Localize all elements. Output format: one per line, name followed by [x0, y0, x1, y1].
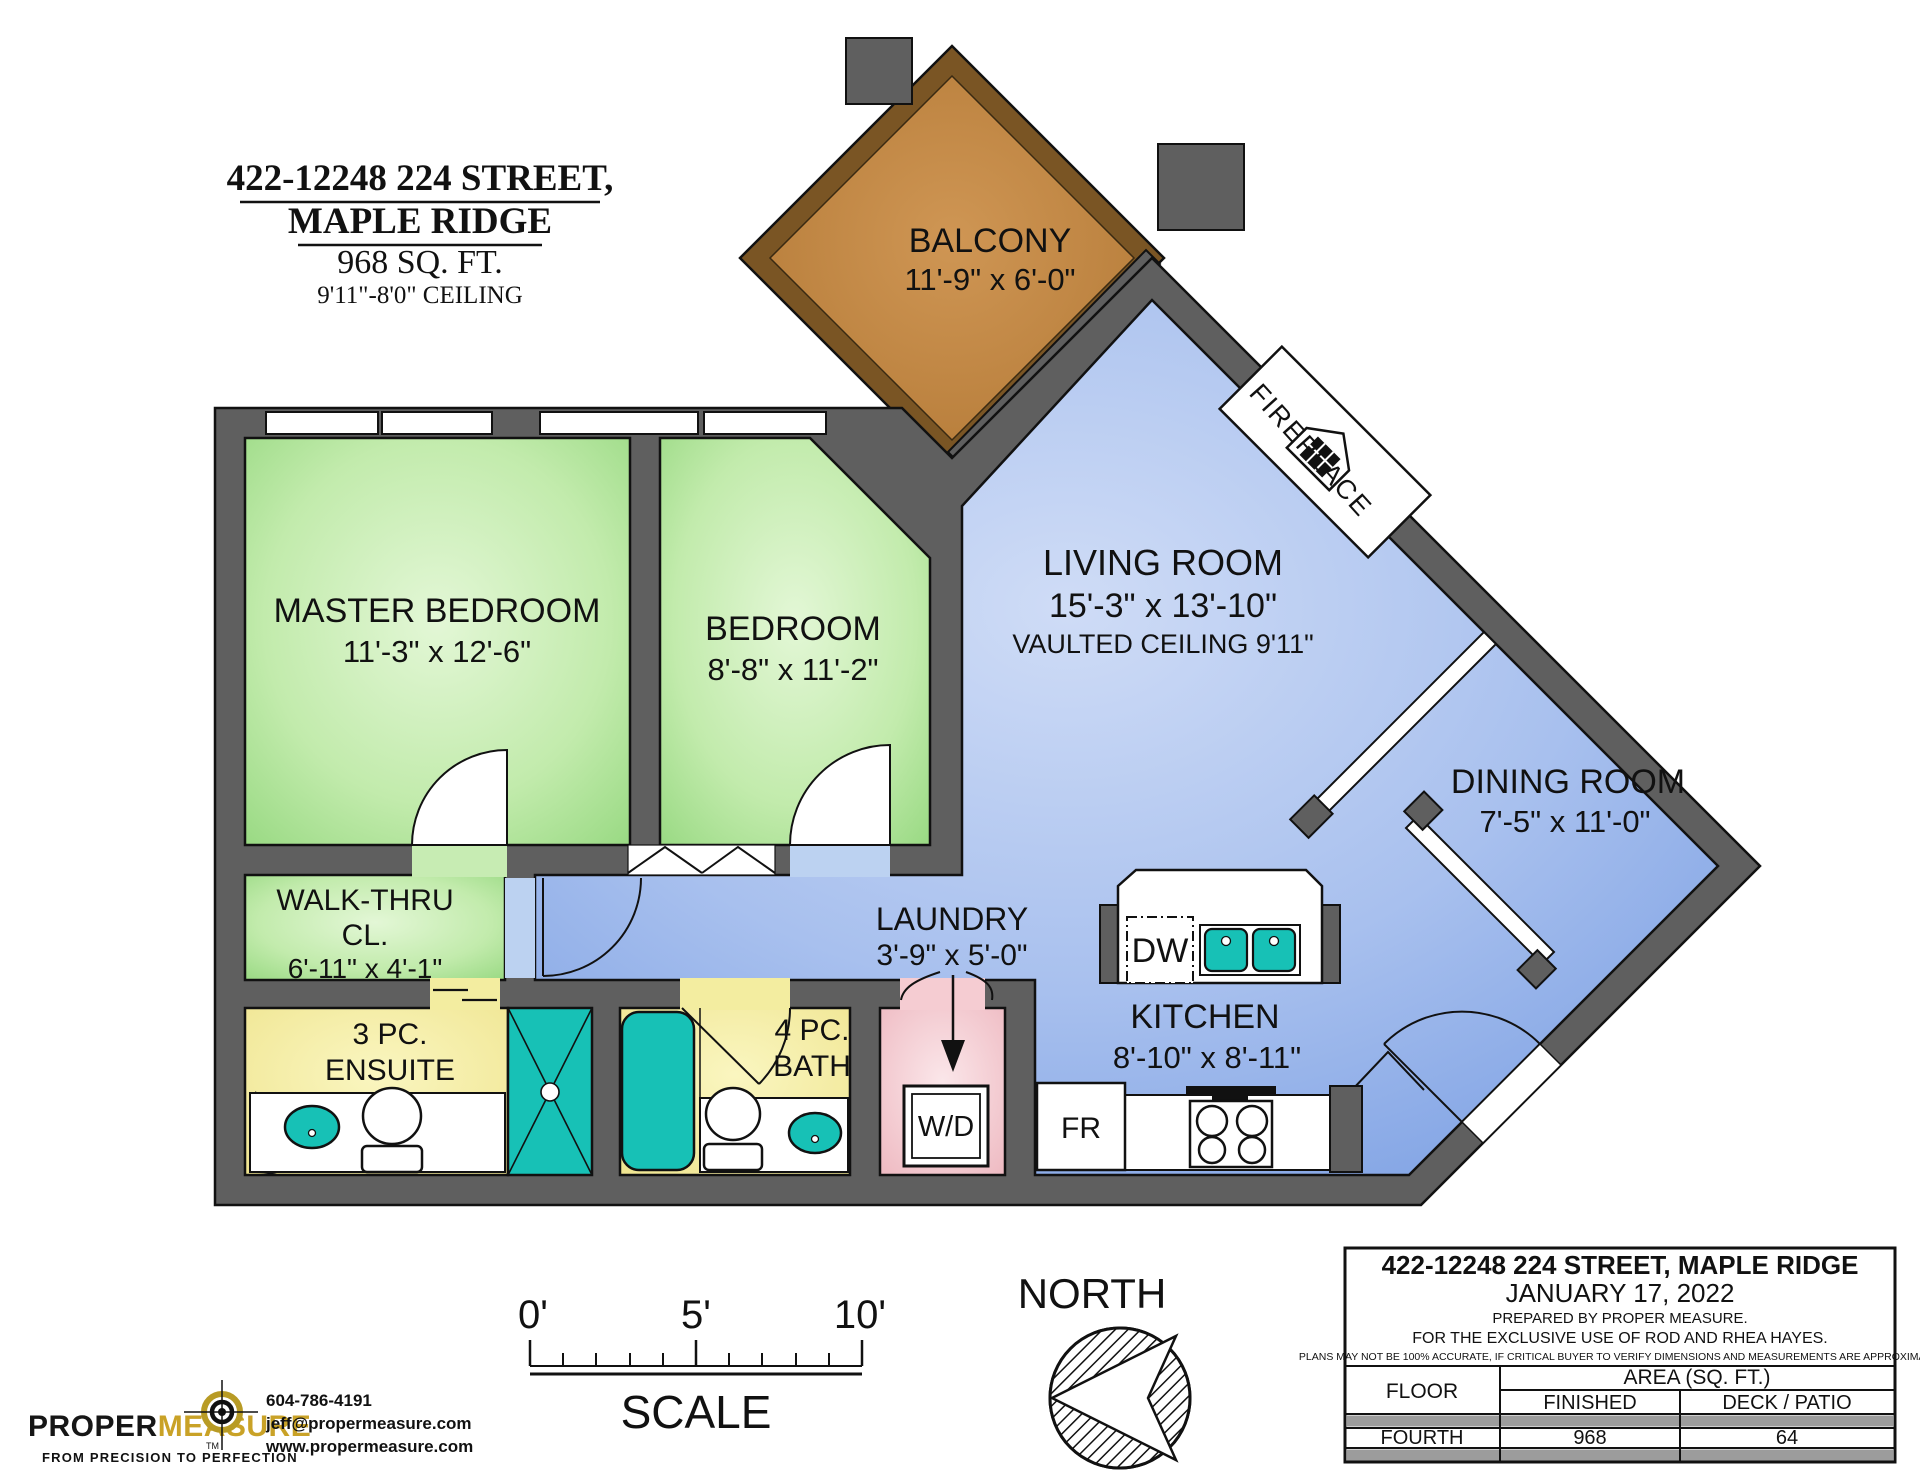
info-disclaimer: PLANS MAY NOT BE 100% ACCURATE, IF CRITI… — [1299, 1351, 1920, 1363]
balcony-pillar — [846, 38, 912, 104]
washer-dryer-label: W/D — [918, 1111, 974, 1143]
info-address: 422-12248 224 STREET, MAPLE RIDGE — [1382, 1250, 1859, 1280]
laundry-label: LAUNDRY — [876, 901, 1028, 937]
kitchen-label: KITCHEN — [1130, 998, 1279, 1036]
dining-room-label: DINING ROOM — [1451, 763, 1685, 801]
contact-website: www.propermeasure.com — [265, 1437, 473, 1456]
title-address: 422-12248 224 STREET, — [227, 158, 614, 199]
col-deck: DECK / PATIO — [1722, 1392, 1851, 1414]
info-date: JANUARY 17, 2022 — [1506, 1278, 1735, 1308]
info-exclusive: FOR THE EXCLUSIVE USE OF ROD AND RHEA HA… — [1412, 1330, 1828, 1347]
col-floor: FLOOR — [1386, 1380, 1458, 1403]
scale-tick-5: 5' — [681, 1293, 711, 1337]
bath-label-2: BATH — [773, 1050, 851, 1083]
master-bedroom-label: MASTER BEDROOM — [274, 592, 601, 630]
logo-tagline: FROM PRECISION TO PERFECTION — [42, 1450, 298, 1465]
dining-room-dims: 7'-5" x 11'-0" — [1479, 804, 1650, 839]
title-city: MAPLE RIDGE — [288, 201, 552, 242]
north-compass: NORTH — [1018, 1270, 1190, 1468]
scale-label: SCALE — [621, 1386, 772, 1438]
col-finished: FINISHED — [1543, 1392, 1636, 1414]
row-floor: FOURTH — [1381, 1427, 1464, 1449]
windows — [266, 412, 826, 434]
living-room-note: VAULTED CEILING 9'11" — [1012, 629, 1313, 659]
propermeasure-logo: PROPERMEASURE TM FROM PRECISION TO PERFE… — [28, 1380, 473, 1465]
living-room-dims: 15'-3" x 13'-10" — [1049, 587, 1277, 625]
bath-sink — [789, 1113, 841, 1153]
scale-bar: 0' 5' 10' SCALE — [518, 1293, 886, 1438]
contact-email: jeff@propermeasure.com — [265, 1414, 472, 1433]
kitchen-sink — [1205, 929, 1247, 971]
bath-toilet — [706, 1088, 760, 1140]
ensuite-sink — [285, 1106, 339, 1148]
balcony-dims: 11'-9" x 6'-0" — [904, 262, 1075, 297]
logo-part1: PROPER — [28, 1410, 158, 1443]
dishwasher-label: DW — [1132, 932, 1189, 970]
bath-label-1: 4 PC. — [774, 1014, 849, 1047]
row-finished: 968 — [1573, 1427, 1606, 1449]
col-area: AREA (SQ. FT.) — [1623, 1366, 1770, 1389]
ensuite-label-2: ENSUITE — [325, 1054, 455, 1087]
master-bedroom-dims: 11'-3" x 12'-6" — [343, 634, 531, 669]
contact-phone: 604-786-4191 — [266, 1391, 372, 1410]
shower-drain — [541, 1083, 559, 1101]
balcony-pillar — [1158, 144, 1244, 230]
bedroom-label: BEDROOM — [705, 610, 881, 648]
ensuite-fixtures — [250, 1088, 505, 1172]
bedroom-dims: 8'-8" x 11'-2" — [707, 652, 878, 687]
info-prepared: PREPARED BY PROPER MEASURE. — [1492, 1310, 1747, 1327]
kitchen-dims: 8'-10" x 8'-11" — [1113, 1040, 1301, 1075]
ensuite-toilet — [363, 1088, 421, 1144]
title-ceiling: 9'11"-8'0" CEILING — [317, 282, 523, 309]
living-room-label: LIVING ROOM — [1043, 542, 1283, 583]
scale-tick-0: 0' — [518, 1293, 548, 1337]
row-deck: 64 — [1776, 1427, 1798, 1449]
walkthru-label-1: WALK-THRU — [276, 884, 453, 917]
floorplan-canvas: FIREPLACE BALCONY 11'-9" x 6'-0" LIVING … — [0, 0, 1920, 1484]
laundry-dims: 3'-9" x 5'-0" — [876, 939, 1027, 972]
title-area: 968 SQ. FT. — [337, 244, 503, 281]
ensuite-label-1: 3 PC. — [352, 1018, 427, 1051]
floorplan-page: FIREPLACE BALCONY 11'-9" x 6'-0" LIVING … — [0, 0, 1920, 1484]
bathtub — [622, 1012, 694, 1170]
north-label: NORTH — [1018, 1270, 1167, 1317]
walkthru-label-2: CL. — [342, 919, 389, 952]
balcony-label: BALCONY — [909, 222, 1072, 260]
title-block: 422-12248 224 STREET, MAPLE RIDGE 968 SQ… — [227, 158, 614, 309]
scale-tick-10: 10' — [834, 1293, 886, 1337]
info-box: 422-12248 224 STREET, MAPLE RIDGE JANUAR… — [1299, 1248, 1920, 1462]
fridge-label: FR — [1061, 1112, 1101, 1145]
walkthru-dims: 6'-11" x 4'-1" — [288, 953, 443, 984]
kitchen-sink — [1253, 929, 1295, 971]
